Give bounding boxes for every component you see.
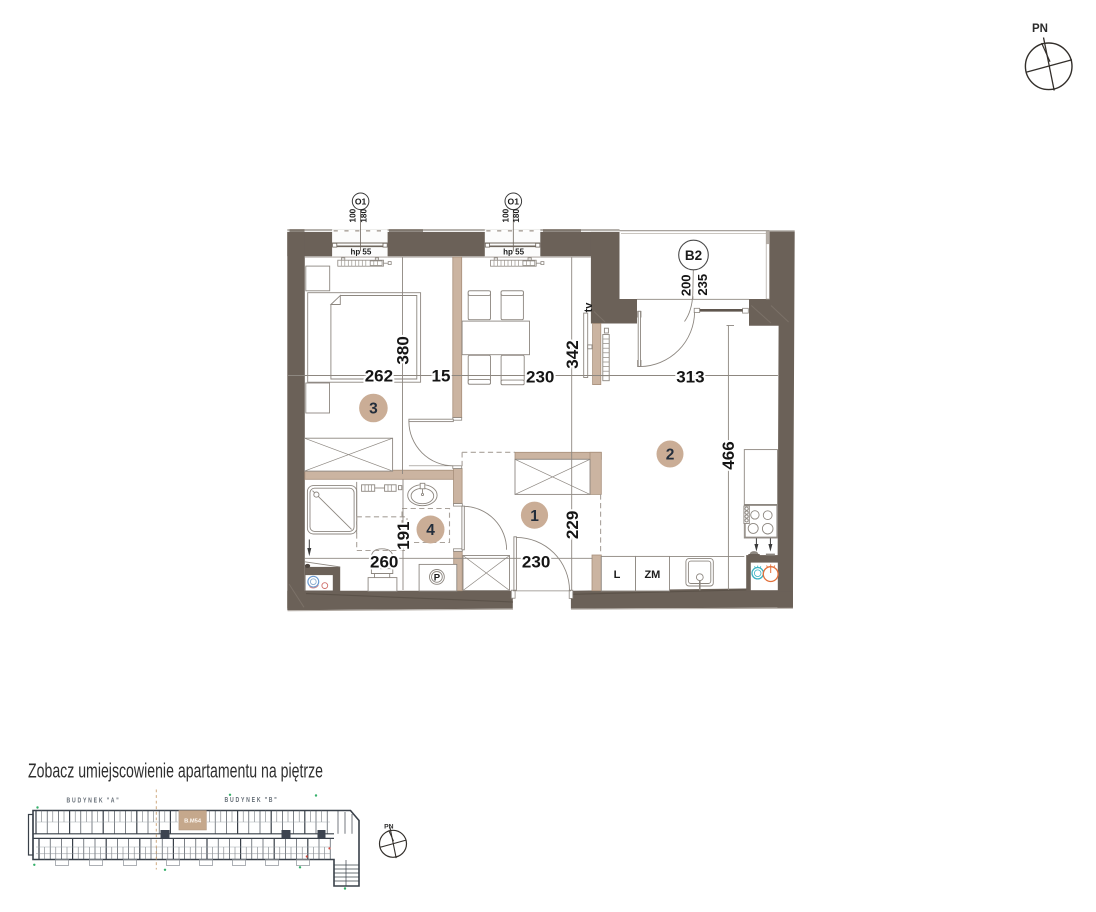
svg-text:3: 3: [369, 401, 378, 418]
svg-text:BUDYNEK "B": BUDYNEK "B": [225, 795, 279, 804]
svg-text:380: 380: [394, 336, 413, 364]
svg-text:L: L: [614, 569, 621, 581]
svg-text:342: 342: [563, 340, 582, 368]
svg-text:191: 191: [394, 522, 413, 550]
svg-text:230: 230: [522, 552, 550, 571]
svg-text:B.M54: B.M54: [184, 818, 201, 824]
svg-text:100: 100: [349, 208, 358, 222]
svg-text:229: 229: [563, 511, 582, 539]
svg-text:262: 262: [365, 366, 393, 385]
svg-text:PN: PN: [384, 823, 394, 830]
svg-text:4: 4: [426, 522, 435, 539]
svg-text:hp 55: hp 55: [503, 248, 524, 257]
svg-text:Zobacz umiejscowienie apartame: Zobacz umiejscowienie apartamentu na pię…: [28, 761, 323, 783]
svg-text:100: 100: [501, 208, 510, 222]
svg-text:466: 466: [719, 441, 738, 469]
svg-text:hp 55: hp 55: [350, 248, 371, 257]
svg-text:313: 313: [676, 368, 704, 387]
svg-text:PN: PN: [1032, 23, 1048, 35]
svg-text:P: P: [434, 572, 441, 583]
svg-text:1: 1: [530, 508, 539, 525]
svg-text:ZM: ZM: [644, 569, 660, 581]
svg-text:O1: O1: [508, 196, 520, 206]
svg-text:O1: O1: [355, 196, 367, 206]
svg-text:260: 260: [370, 552, 398, 571]
svg-text:235: 235: [695, 274, 710, 296]
svg-text:180: 180: [512, 209, 521, 223]
svg-text:B2: B2: [685, 248, 702, 263]
svg-text:2: 2: [666, 447, 675, 464]
svg-text:15: 15: [432, 366, 451, 385]
svg-text:200: 200: [678, 274, 693, 296]
svg-text:230: 230: [526, 368, 554, 387]
svg-text:tv: tv: [583, 302, 595, 313]
svg-text:180: 180: [360, 209, 369, 223]
svg-text:BUDYNEK "A": BUDYNEK "A": [67, 796, 121, 805]
